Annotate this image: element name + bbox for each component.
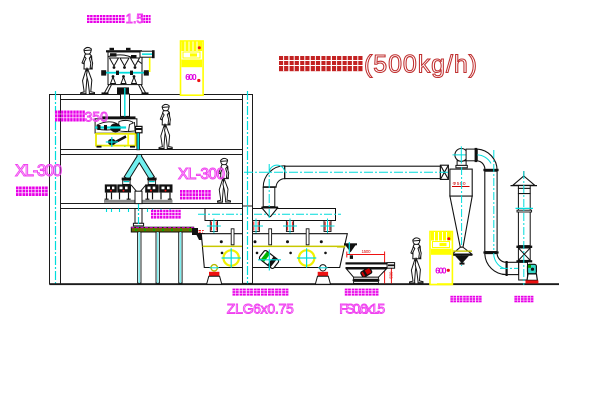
svg-text:FS0.6x1.5: FS0.6x1.5	[339, 301, 385, 317]
svg-text:XL-300: XL-300	[178, 166, 225, 183]
svg-text:600: 600	[435, 266, 447, 276]
svg-text:600: 600	[185, 72, 197, 82]
svg-text:1.5: 1.5	[126, 11, 144, 26]
svg-text:XL-300: XL-300	[15, 162, 62, 180]
svg-text:350: 350	[85, 109, 109, 125]
svg-text:1500: 1500	[362, 249, 371, 254]
svg-text:ZLG6x0.75: ZLG6x0.75	[227, 301, 294, 317]
svg-text:500: 500	[389, 271, 394, 278]
svg-text:(500kg/h): (500kg/h)	[364, 51, 477, 79]
